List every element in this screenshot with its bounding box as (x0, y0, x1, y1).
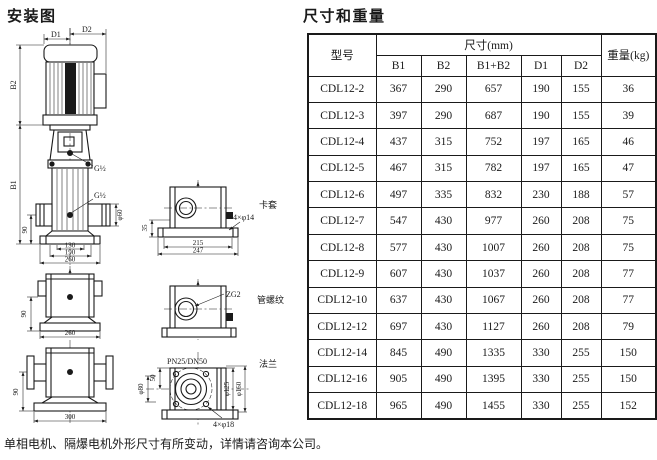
model-cell: CDL12-7 (308, 208, 376, 234)
value-cell: 260 (521, 208, 561, 234)
value-cell: 165 (561, 129, 601, 155)
model-cell: CDL12-16 (308, 366, 376, 392)
value-cell: 1067 (466, 287, 521, 313)
dim-label-260-base1: 260 (65, 329, 76, 337)
value-cell: 208 (561, 287, 601, 313)
value-cell: 36 (601, 76, 656, 102)
table-row: CDL12-649733583223018857 (308, 182, 656, 208)
dim-label-d2: D2 (82, 25, 92, 34)
motor-terminal-box (94, 74, 106, 108)
value-cell: 197 (521, 155, 561, 181)
model-cell: CDL12-8 (308, 234, 376, 260)
value-cell: 832 (466, 182, 521, 208)
model-cell: CDL12-2 (308, 76, 376, 102)
value-cell: 255 (561, 366, 601, 392)
value-cell: 315 (421, 155, 466, 181)
value-cell: 46 (601, 129, 656, 155)
value-cell: 208 (561, 234, 601, 260)
col-header-b1: B1 (376, 55, 421, 76)
value-cell: 260 (521, 287, 561, 313)
value-cell: 1127 (466, 314, 521, 340)
dim-label-d1: D1 (51, 30, 61, 39)
clamp-view-label: 卡套 (259, 199, 277, 210)
value-cell: 367 (376, 76, 421, 102)
model-cell: CDL12-4 (308, 129, 376, 155)
value-cell: 497 (376, 182, 421, 208)
table-row: CDL12-8577430100726020875 (308, 234, 656, 260)
value-cell: 152 (601, 393, 656, 419)
value-cell: 208 (561, 314, 601, 340)
value-cell: 39 (601, 102, 656, 128)
value-cell: 547 (376, 208, 421, 234)
model-cell: CDL12-14 (308, 340, 376, 366)
col-header-b2: B2 (421, 55, 466, 76)
value-cell: 155 (561, 76, 601, 102)
table-row: CDL12-546731578219716547 (308, 155, 656, 181)
value-cell: 977 (466, 208, 521, 234)
value-cell: 190 (521, 102, 561, 128)
table-row: CDL12-754743097726020875 (308, 208, 656, 234)
table-row: CDL12-339729068719015539 (308, 102, 656, 128)
value-cell: 230 (521, 182, 561, 208)
value-cell: 75 (601, 234, 656, 260)
flange-connection-view: PN25/DN50 50 φ80 (137, 352, 277, 429)
table-row: CDL12-169054901395330255150 (308, 366, 656, 392)
dim-label-90-base1: 90 (20, 310, 28, 318)
value-cell: 335 (421, 182, 466, 208)
value-cell: 490 (421, 366, 466, 392)
dim-label-90-base2: 90 (12, 388, 20, 396)
value-cell: 577 (376, 234, 421, 260)
value-cell: 1455 (466, 393, 521, 419)
value-cell: 150 (601, 340, 656, 366)
value-cell: 752 (466, 129, 521, 155)
installation-diagram: D1 D2 B2 B1 G½ G½ φ60 90 (0, 22, 305, 434)
dim-label-35: 35 (141, 224, 149, 232)
clamp-connection-view: 35 215 247 4×φ14 卡套 (141, 180, 277, 256)
value-cell: 150 (601, 366, 656, 392)
value-cell: 190 (521, 76, 561, 102)
value-cell: 697 (376, 314, 421, 340)
table-row: CDL12-148454901335330255150 (308, 340, 656, 366)
dimensions-weight-title: 尺寸和重量 (303, 5, 386, 26)
value-cell: 430 (421, 261, 466, 287)
value-cell: 197 (521, 129, 561, 155)
model-cell: CDL12-3 (308, 102, 376, 128)
model-cell: CDL12-5 (308, 155, 376, 181)
holes-callout-phi18: 4×φ18 (213, 420, 234, 429)
col-header-model: 型号 (308, 34, 376, 76)
value-cell: 467 (376, 155, 421, 181)
dim-label-50: 50 (149, 374, 157, 382)
dim-label-260-main: 260 (65, 256, 76, 264)
value-cell: 430 (421, 314, 466, 340)
thread-callout-1: G½ (94, 164, 106, 173)
value-cell: 430 (421, 208, 466, 234)
model-cell: CDL12-10 (308, 287, 376, 313)
table-row: CDL12-236729065719015536 (308, 76, 656, 102)
value-cell: 330 (521, 366, 561, 392)
value-cell: 260 (521, 314, 561, 340)
value-cell: 165 (561, 155, 601, 181)
dim-label-90-main: 90 (21, 226, 29, 234)
value-cell: 965 (376, 393, 421, 419)
value-cell: 77 (601, 261, 656, 287)
value-cell: 255 (561, 340, 601, 366)
value-cell: 330 (521, 393, 561, 419)
dim-label-b2: B2 (9, 80, 18, 89)
dim-label-phi160: φ160 (235, 381, 243, 396)
value-cell: 1037 (466, 261, 521, 287)
value-cell: 57 (601, 182, 656, 208)
dimensions-table-header: 型号 尺寸(mm) 重量(kg) B1 B2 B1+B2 D1 D2 (308, 34, 656, 76)
value-cell: 77 (601, 287, 656, 313)
value-cell: 1335 (466, 340, 521, 366)
model-cell: CDL12-9 (308, 261, 376, 287)
value-cell: 315 (421, 129, 466, 155)
value-cell: 430 (421, 287, 466, 313)
dimensions-table-container: 型号 尺寸(mm) 重量(kg) B1 B2 B1+B2 D1 D2 CDL12… (307, 33, 657, 420)
dimensions-table: 型号 尺寸(mm) 重量(kg) B1 B2 B1+B2 D1 D2 CDL12… (307, 33, 657, 420)
value-cell: 845 (376, 340, 421, 366)
table-row: CDL12-10637430106726020877 (308, 287, 656, 313)
value-cell: 255 (561, 393, 601, 419)
value-cell: 607 (376, 261, 421, 287)
value-cell: 437 (376, 129, 421, 155)
table-row: CDL12-443731575219716546 (308, 129, 656, 155)
thread-callout-2: G½ (94, 191, 106, 200)
footnote-text: 单相电机、隔爆电机外形尺寸有所变动，详情请咨询本公司。 (4, 435, 328, 452)
table-row: CDL12-189654901455330255152 (308, 393, 656, 419)
value-cell: 490 (421, 340, 466, 366)
value-cell: 47 (601, 155, 656, 181)
dim-label-b1: B1 (9, 180, 18, 189)
value-cell: 637 (376, 287, 421, 313)
value-cell: 290 (421, 76, 466, 102)
value-cell: 782 (466, 155, 521, 181)
value-cell: 260 (521, 234, 561, 260)
value-cell: 490 (421, 393, 466, 419)
model-cell: CDL12-6 (308, 182, 376, 208)
pipe-thread-connection-view: ZG2 管螺纹 (162, 279, 284, 340)
col-header-dims-group: 尺寸(mm) (376, 34, 601, 55)
col-header-d1: D1 (521, 55, 561, 76)
value-cell: 1007 (466, 234, 521, 260)
value-cell: 290 (421, 102, 466, 128)
col-header-d2: D2 (561, 55, 601, 76)
col-header-b1b2: B1+B2 (466, 55, 521, 76)
value-cell: 1395 (466, 366, 521, 392)
dim-label-phi80: φ80 (137, 383, 145, 395)
thread-callout-zg2: ZG2 (226, 290, 241, 299)
col-header-weight: 重量(kg) (601, 34, 656, 76)
flange-view-label: 法兰 (259, 358, 277, 369)
table-row: CDL12-12697430112726020879 (308, 314, 656, 340)
value-cell: 208 (561, 208, 601, 234)
holes-callout-phi14: 4×φ14 (233, 213, 254, 222)
value-cell: 430 (421, 234, 466, 260)
value-cell: 397 (376, 102, 421, 128)
value-cell: 330 (521, 340, 561, 366)
dim-label-phi60: φ60 (116, 209, 124, 221)
motor-fan-cover (44, 45, 97, 62)
value-cell: 79 (601, 314, 656, 340)
thread-view-label: 管螺纹 (257, 294, 284, 305)
value-cell: 208 (561, 261, 601, 287)
value-cell: 155 (561, 102, 601, 128)
value-cell: 188 (561, 182, 601, 208)
value-cell: 657 (466, 76, 521, 102)
value-cell: 75 (601, 208, 656, 234)
value-cell: 260 (521, 261, 561, 287)
table-row: CDL12-9607430103726020877 (308, 261, 656, 287)
flange-spec-label: PN25/DN50 (167, 357, 207, 366)
pump-base-view-260: 90 260 (20, 266, 102, 339)
value-cell: 905 (376, 366, 421, 392)
value-cell: 687 (466, 102, 521, 128)
pump-barrel (52, 168, 88, 231)
dim-label-247: 247 (193, 247, 204, 255)
pump-base-view-300: 90 300 (12, 340, 113, 424)
dimensions-table-body: CDL12-236729065719015536CDL12-3397290687… (308, 76, 656, 419)
model-cell: CDL12-12 (308, 314, 376, 340)
catalog-page: { "page": { "diagram_title": "安装图", "tab… (0, 0, 657, 460)
pump-front-view: D1 D2 B2 B1 G½ G½ φ60 90 (9, 25, 124, 265)
dim-label-300-base2: 300 (65, 413, 76, 421)
dim-label-phi125: φ125 (223, 381, 231, 396)
model-cell: CDL12-18 (308, 393, 376, 419)
